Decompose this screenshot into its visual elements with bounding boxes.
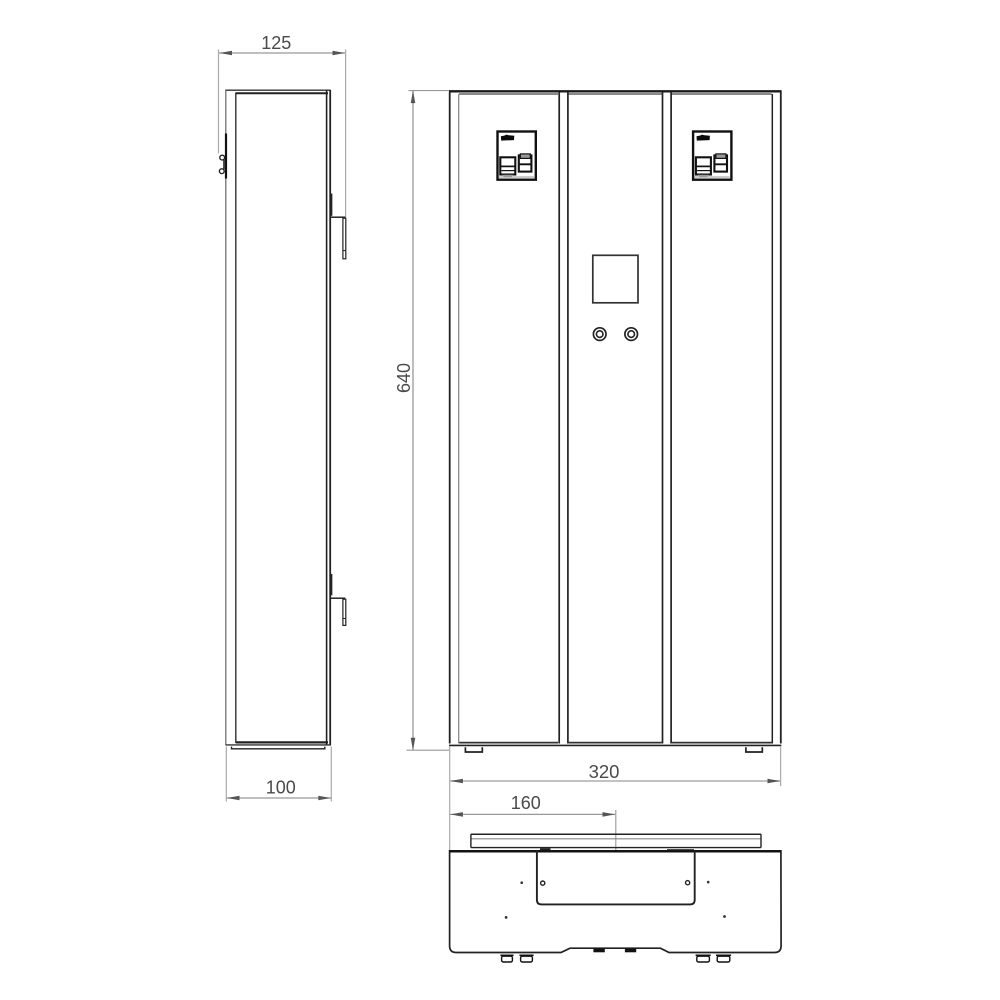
svg-text:320: 320 xyxy=(589,761,620,782)
svg-text:100: 100 xyxy=(266,778,296,798)
svg-text:125: 125 xyxy=(261,33,291,53)
svg-text:160: 160 xyxy=(511,793,541,813)
svg-text:640: 640 xyxy=(394,363,414,393)
